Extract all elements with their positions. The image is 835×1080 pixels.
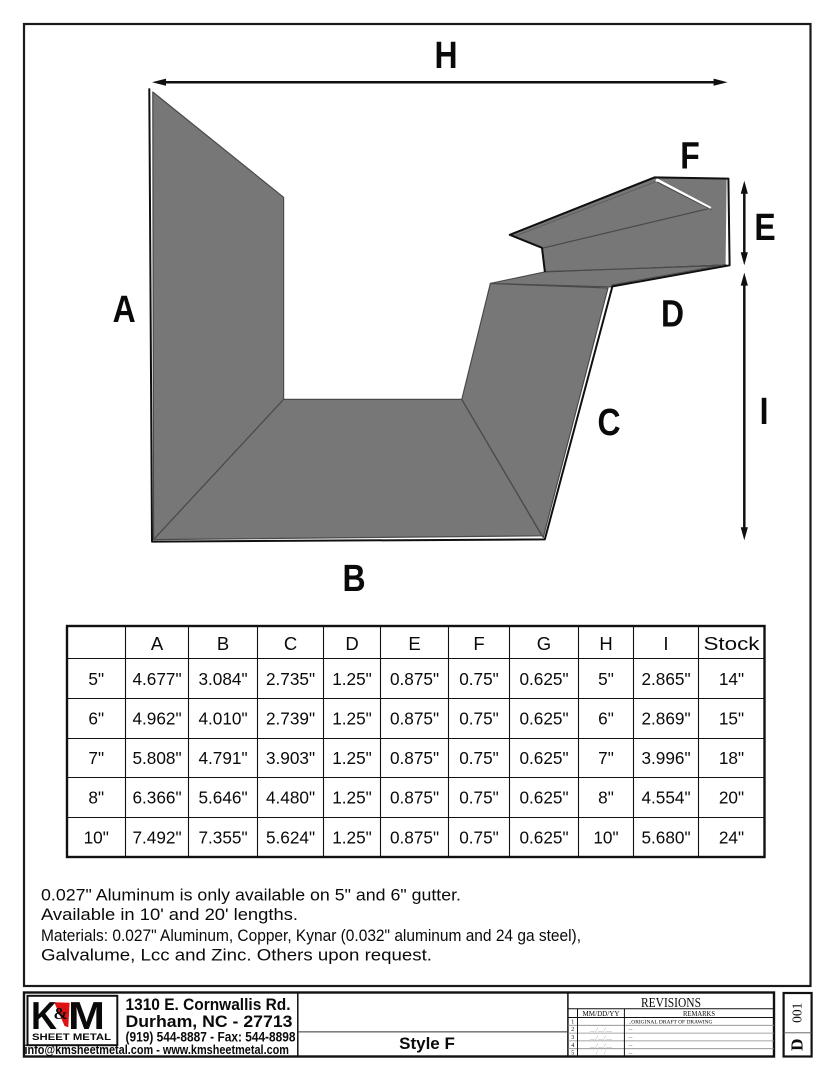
svg-text:D: D bbox=[788, 1039, 807, 1051]
svg-text:2: 2 bbox=[571, 1027, 574, 1033]
svg-text:F: F bbox=[680, 135, 699, 177]
svg-text:1.25": 1.25" bbox=[332, 709, 372, 729]
svg-text:A: A bbox=[113, 288, 136, 330]
svg-text:14": 14" bbox=[719, 669, 744, 689]
svg-text:2.735": 2.735" bbox=[266, 669, 315, 689]
svg-text:MM/DD/YY: MM/DD/YY bbox=[583, 1010, 620, 1018]
svg-text:C: C bbox=[284, 633, 297, 654]
svg-text:G: G bbox=[537, 633, 551, 654]
svg-text:10": 10" bbox=[84, 828, 109, 848]
svg-text:0.75": 0.75" bbox=[459, 788, 499, 808]
svg-text:3.996": 3.996" bbox=[641, 748, 690, 768]
svg-text:7": 7" bbox=[598, 748, 614, 768]
svg-text:C: C bbox=[597, 401, 620, 443]
svg-text:8": 8" bbox=[598, 788, 614, 808]
svg-text:--: -- bbox=[629, 1034, 633, 1041]
svg-text:0.75": 0.75" bbox=[459, 748, 499, 768]
svg-text:20": 20" bbox=[719, 788, 744, 808]
svg-text:4.554": 4.554" bbox=[641, 788, 690, 808]
svg-text:I: I bbox=[663, 633, 668, 654]
svg-text:5.680": 5.680" bbox=[641, 828, 690, 848]
svg-text:SHEET METAL: SHEET METAL bbox=[32, 1032, 112, 1042]
svg-text:0.625": 0.625" bbox=[519, 669, 568, 689]
svg-text:__/__/__: __/__/__ bbox=[589, 1042, 613, 1049]
svg-text:8": 8" bbox=[88, 788, 104, 808]
svg-text:D: D bbox=[345, 633, 358, 654]
svg-text:F: F bbox=[473, 633, 484, 654]
svg-text:2.869": 2.869" bbox=[641, 709, 690, 729]
svg-text:info@kmsheetmetal.com - www.km: info@kmsheetmetal.com - www.kmsheetmetal… bbox=[25, 1042, 290, 1057]
svg-text:7.492": 7.492" bbox=[132, 828, 181, 848]
svg-text:0.75": 0.75" bbox=[459, 709, 499, 729]
svg-text:0.875": 0.875" bbox=[390, 748, 439, 768]
svg-text:__/__/__: __/__/__ bbox=[589, 1026, 613, 1033]
svg-text:Galvalume, Lcc and Zinc. Other: Galvalume, Lcc and Zinc. Others upon req… bbox=[41, 946, 432, 964]
svg-text:I: I bbox=[760, 390, 769, 432]
svg-text:A: A bbox=[151, 633, 164, 654]
svg-text:6": 6" bbox=[598, 709, 614, 729]
svg-text:1.25": 1.25" bbox=[332, 788, 372, 808]
svg-text:Available in 10' and 20' lengt: Available in 10' and 20' lengths. bbox=[41, 906, 298, 924]
svg-text:24": 24" bbox=[719, 828, 744, 848]
svg-text:5.624": 5.624" bbox=[266, 828, 315, 848]
svg-text:4.791": 4.791" bbox=[198, 748, 247, 768]
svg-text:5.646": 5.646" bbox=[198, 788, 247, 808]
svg-text:0.625": 0.625" bbox=[519, 828, 568, 848]
svg-text:5.808": 5.808" bbox=[132, 748, 181, 768]
svg-text:E: E bbox=[754, 206, 775, 248]
svg-text:Style F: Style F bbox=[399, 1034, 455, 1053]
svg-text:1.25": 1.25" bbox=[332, 669, 372, 689]
svg-text:1.25": 1.25" bbox=[332, 828, 372, 848]
svg-text:2.865": 2.865" bbox=[641, 669, 690, 689]
svg-text:4: 4 bbox=[571, 1043, 574, 1049]
svg-text:0.75": 0.75" bbox=[459, 669, 499, 689]
svg-text:5: 5 bbox=[571, 1051, 574, 1057]
svg-text:0.75": 0.75" bbox=[459, 828, 499, 848]
svg-text:15": 15" bbox=[719, 709, 744, 729]
svg-text:REMARKS: REMARKS bbox=[683, 1010, 715, 1018]
svg-text:3.903": 3.903" bbox=[266, 748, 315, 768]
svg-text:__/__/__: __/__/__ bbox=[589, 1034, 613, 1041]
svg-text:__/__/__: __/__/__ bbox=[589, 1050, 613, 1057]
svg-text:0.875": 0.875" bbox=[390, 788, 439, 808]
svg-text:B: B bbox=[217, 633, 229, 654]
svg-text:0.875": 0.875" bbox=[390, 669, 439, 689]
svg-text:5": 5" bbox=[88, 669, 104, 689]
svg-text:0.875": 0.875" bbox=[390, 828, 439, 848]
svg-text:1: 1 bbox=[571, 1019, 574, 1025]
svg-text:6": 6" bbox=[88, 709, 104, 729]
svg-text:4.677": 4.677" bbox=[132, 669, 181, 689]
svg-text:10": 10" bbox=[593, 828, 618, 848]
svg-text:4.480": 4.480" bbox=[266, 788, 315, 808]
svg-text:0.625": 0.625" bbox=[519, 788, 568, 808]
svg-text:REVISIONS: REVISIONS bbox=[641, 995, 701, 1010]
svg-text:B: B bbox=[342, 557, 365, 599]
svg-text:..ORIGINAL DRAFT OF DRAWING: ..ORIGINAL DRAFT OF DRAWING bbox=[629, 1019, 713, 1025]
svg-text:7.355": 7.355" bbox=[198, 828, 247, 848]
svg-text:0.875": 0.875" bbox=[390, 709, 439, 729]
svg-text:--: -- bbox=[629, 1042, 633, 1049]
svg-text:7": 7" bbox=[88, 748, 104, 768]
svg-text:--: -- bbox=[629, 1050, 633, 1057]
svg-text:--: -- bbox=[629, 1026, 633, 1033]
svg-text:H: H bbox=[599, 633, 612, 654]
svg-text:Stock: Stock bbox=[704, 633, 761, 654]
svg-text:E: E bbox=[408, 633, 420, 654]
svg-text:Materials: 0.027" Aluminum, Co: Materials: 0.027" Aluminum, Copper, Kyna… bbox=[41, 927, 581, 945]
svg-text:0.027" Aluminum is only availa: 0.027" Aluminum is only available on 5" … bbox=[41, 887, 461, 905]
svg-text:1.25": 1.25" bbox=[332, 748, 372, 768]
svg-text:D: D bbox=[661, 293, 684, 335]
svg-text:6.366": 6.366" bbox=[132, 788, 181, 808]
svg-text:4.010": 4.010" bbox=[198, 709, 247, 729]
svg-text:3: 3 bbox=[571, 1035, 574, 1041]
svg-text:2.739": 2.739" bbox=[266, 709, 315, 729]
svg-text:H: H bbox=[434, 34, 457, 76]
svg-text:5": 5" bbox=[598, 669, 614, 689]
svg-text:4.962": 4.962" bbox=[132, 709, 181, 729]
svg-text:3.084": 3.084" bbox=[198, 669, 247, 689]
svg-text:18": 18" bbox=[719, 748, 744, 768]
svg-text:&: & bbox=[54, 1004, 68, 1023]
svg-text:0.625": 0.625" bbox=[519, 748, 568, 768]
svg-text:001: 001 bbox=[790, 1003, 805, 1023]
svg-text:0.625": 0.625" bbox=[519, 709, 568, 729]
